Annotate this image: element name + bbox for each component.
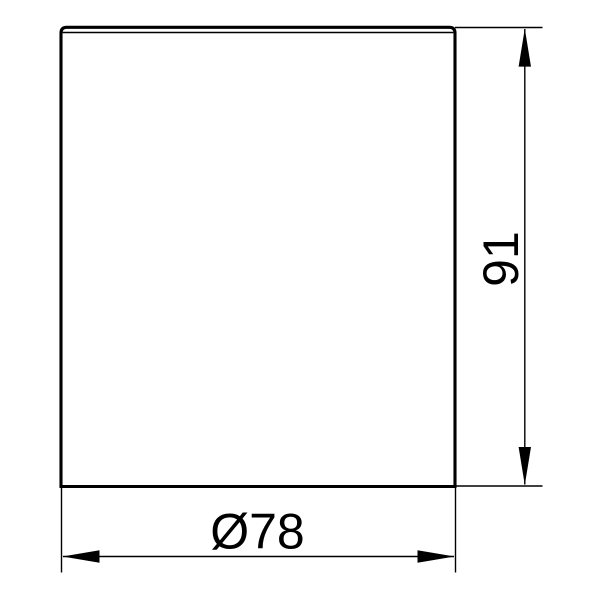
svg-text:91: 91: [473, 231, 529, 287]
svg-text:Ø78: Ø78: [210, 504, 305, 560]
